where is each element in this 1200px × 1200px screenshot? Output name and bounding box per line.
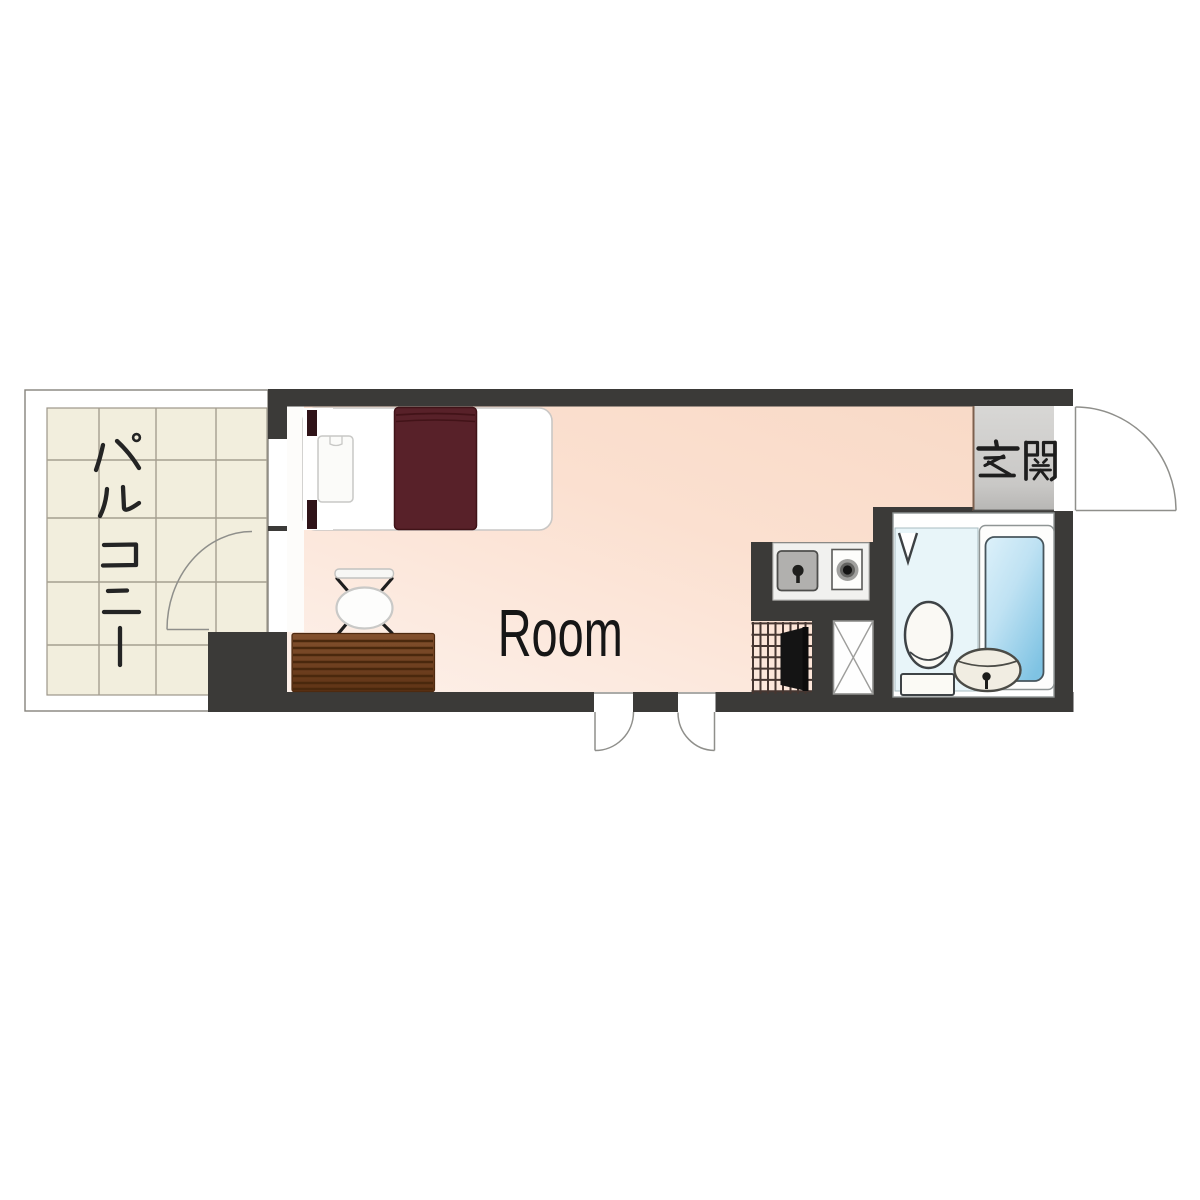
svg-text:Room: Room [498,597,623,671]
